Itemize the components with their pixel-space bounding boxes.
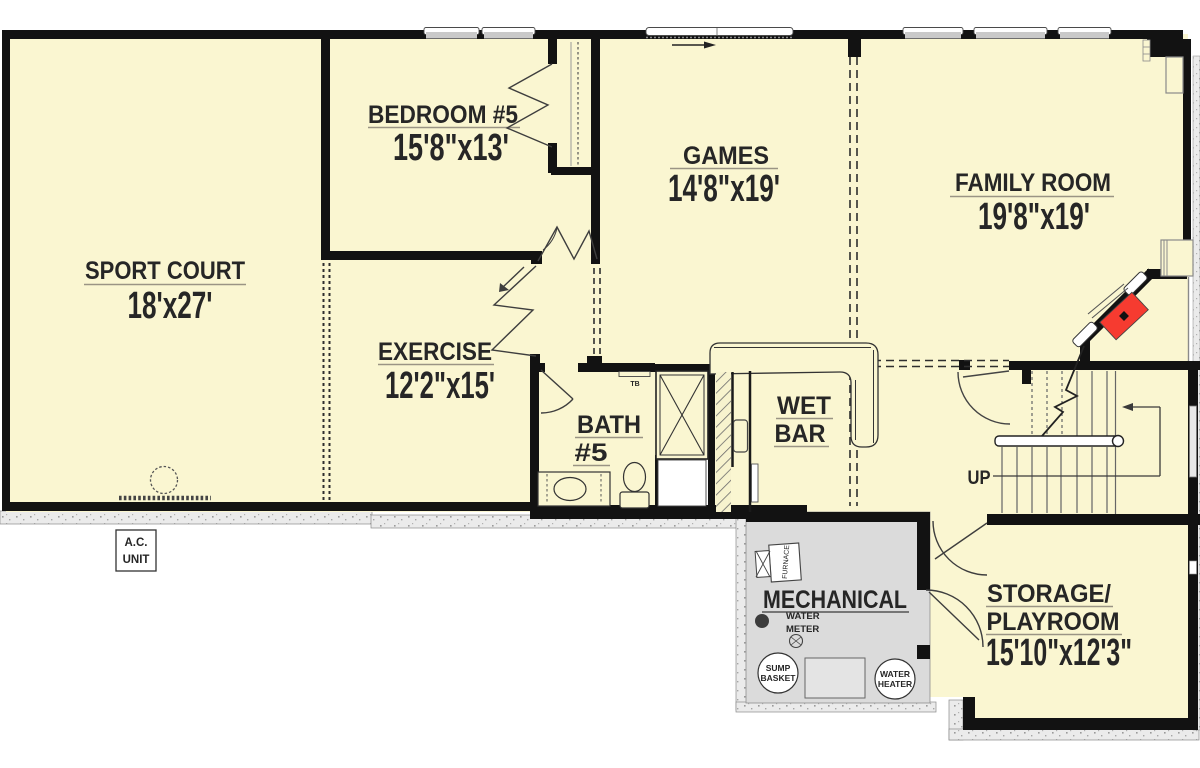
svg-text:FAMILY ROOM: FAMILY ROOM xyxy=(955,169,1111,197)
svg-text:SUMP: SUMP xyxy=(766,663,791,673)
svg-text:METER: METER xyxy=(786,624,819,635)
svg-text:TB: TB xyxy=(630,381,639,388)
svg-text:MECHANICAL: MECHANICAL xyxy=(763,586,907,614)
svg-text:BASKET: BASKET xyxy=(761,673,797,683)
svg-text:UP: UP xyxy=(968,468,991,489)
svg-text:WATER: WATER xyxy=(786,611,820,622)
svg-text:14'8"x19': 14'8"x19' xyxy=(668,168,780,210)
svg-text:HEATER: HEATER xyxy=(878,679,912,689)
svg-text:BATH: BATH xyxy=(577,411,641,439)
svg-text:GAMES: GAMES xyxy=(683,142,769,170)
svg-text:18'x27': 18'x27' xyxy=(128,285,213,327)
svg-text:BEDROOM #5: BEDROOM #5 xyxy=(368,101,518,129)
svg-text:A.C.: A.C. xyxy=(125,537,148,549)
svg-text:15'8"x13': 15'8"x13' xyxy=(393,127,509,169)
svg-text:#5: #5 xyxy=(575,439,608,467)
svg-text:EXERCISE: EXERCISE xyxy=(378,338,492,366)
svg-text:12'2"x15': 12'2"x15' xyxy=(385,365,495,407)
svg-text:WET: WET xyxy=(777,392,831,420)
svg-text:SPORT COURT: SPORT COURT xyxy=(85,257,245,285)
svg-text:19'8"x19': 19'8"x19' xyxy=(978,196,1090,238)
svg-text:BAR: BAR xyxy=(775,420,826,448)
svg-text:15'10"x12'3": 15'10"x12'3" xyxy=(986,632,1132,674)
svg-text:UNIT: UNIT xyxy=(123,554,150,566)
svg-text:WATER: WATER xyxy=(880,669,910,679)
svg-text:STORAGE/: STORAGE/ xyxy=(987,580,1111,608)
